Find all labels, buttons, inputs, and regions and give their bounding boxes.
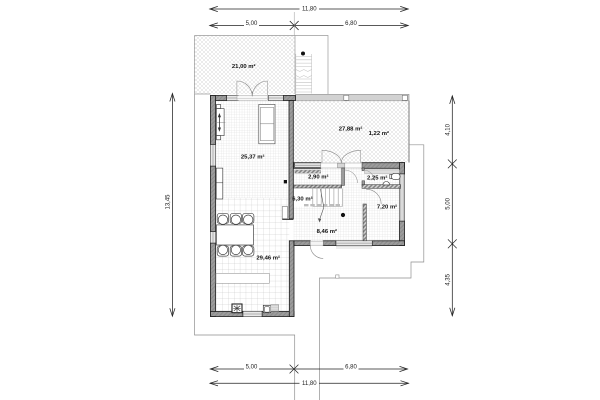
- svg-text:7,20 m²: 7,20 m²: [377, 204, 397, 211]
- svg-text:6,80: 6,80: [345, 21, 357, 27]
- svg-text:1,22 m²: 1,22 m²: [369, 130, 389, 137]
- svg-text:4,10: 4,10: [446, 123, 452, 135]
- svg-text:13,45: 13,45: [166, 194, 172, 210]
- svg-text:5,00: 5,00: [446, 197, 452, 209]
- svg-text:6,80: 6,80: [345, 365, 357, 371]
- svg-text:25,37 m²: 25,37 m²: [241, 153, 265, 160]
- svg-text:5,00: 5,00: [246, 21, 258, 27]
- svg-text:4,35: 4,35: [446, 273, 452, 285]
- svg-text:6,30 m²: 6,30 m²: [292, 195, 312, 202]
- svg-text:2,90 m²: 2,90 m²: [308, 173, 328, 180]
- svg-text:2,25 m²: 2,25 m²: [367, 174, 387, 181]
- svg-text:11,80: 11,80: [302, 381, 317, 387]
- svg-text:27,88 m²: 27,88 m²: [339, 125, 363, 132]
- svg-text:11,80: 11,80: [302, 7, 317, 13]
- svg-text:29,46 m²: 29,46 m²: [256, 255, 280, 262]
- svg-text:5,00: 5,00: [246, 365, 258, 371]
- svg-text:21,00 m²: 21,00 m²: [232, 63, 256, 70]
- svg-text:8,46 m²: 8,46 m²: [317, 228, 337, 235]
